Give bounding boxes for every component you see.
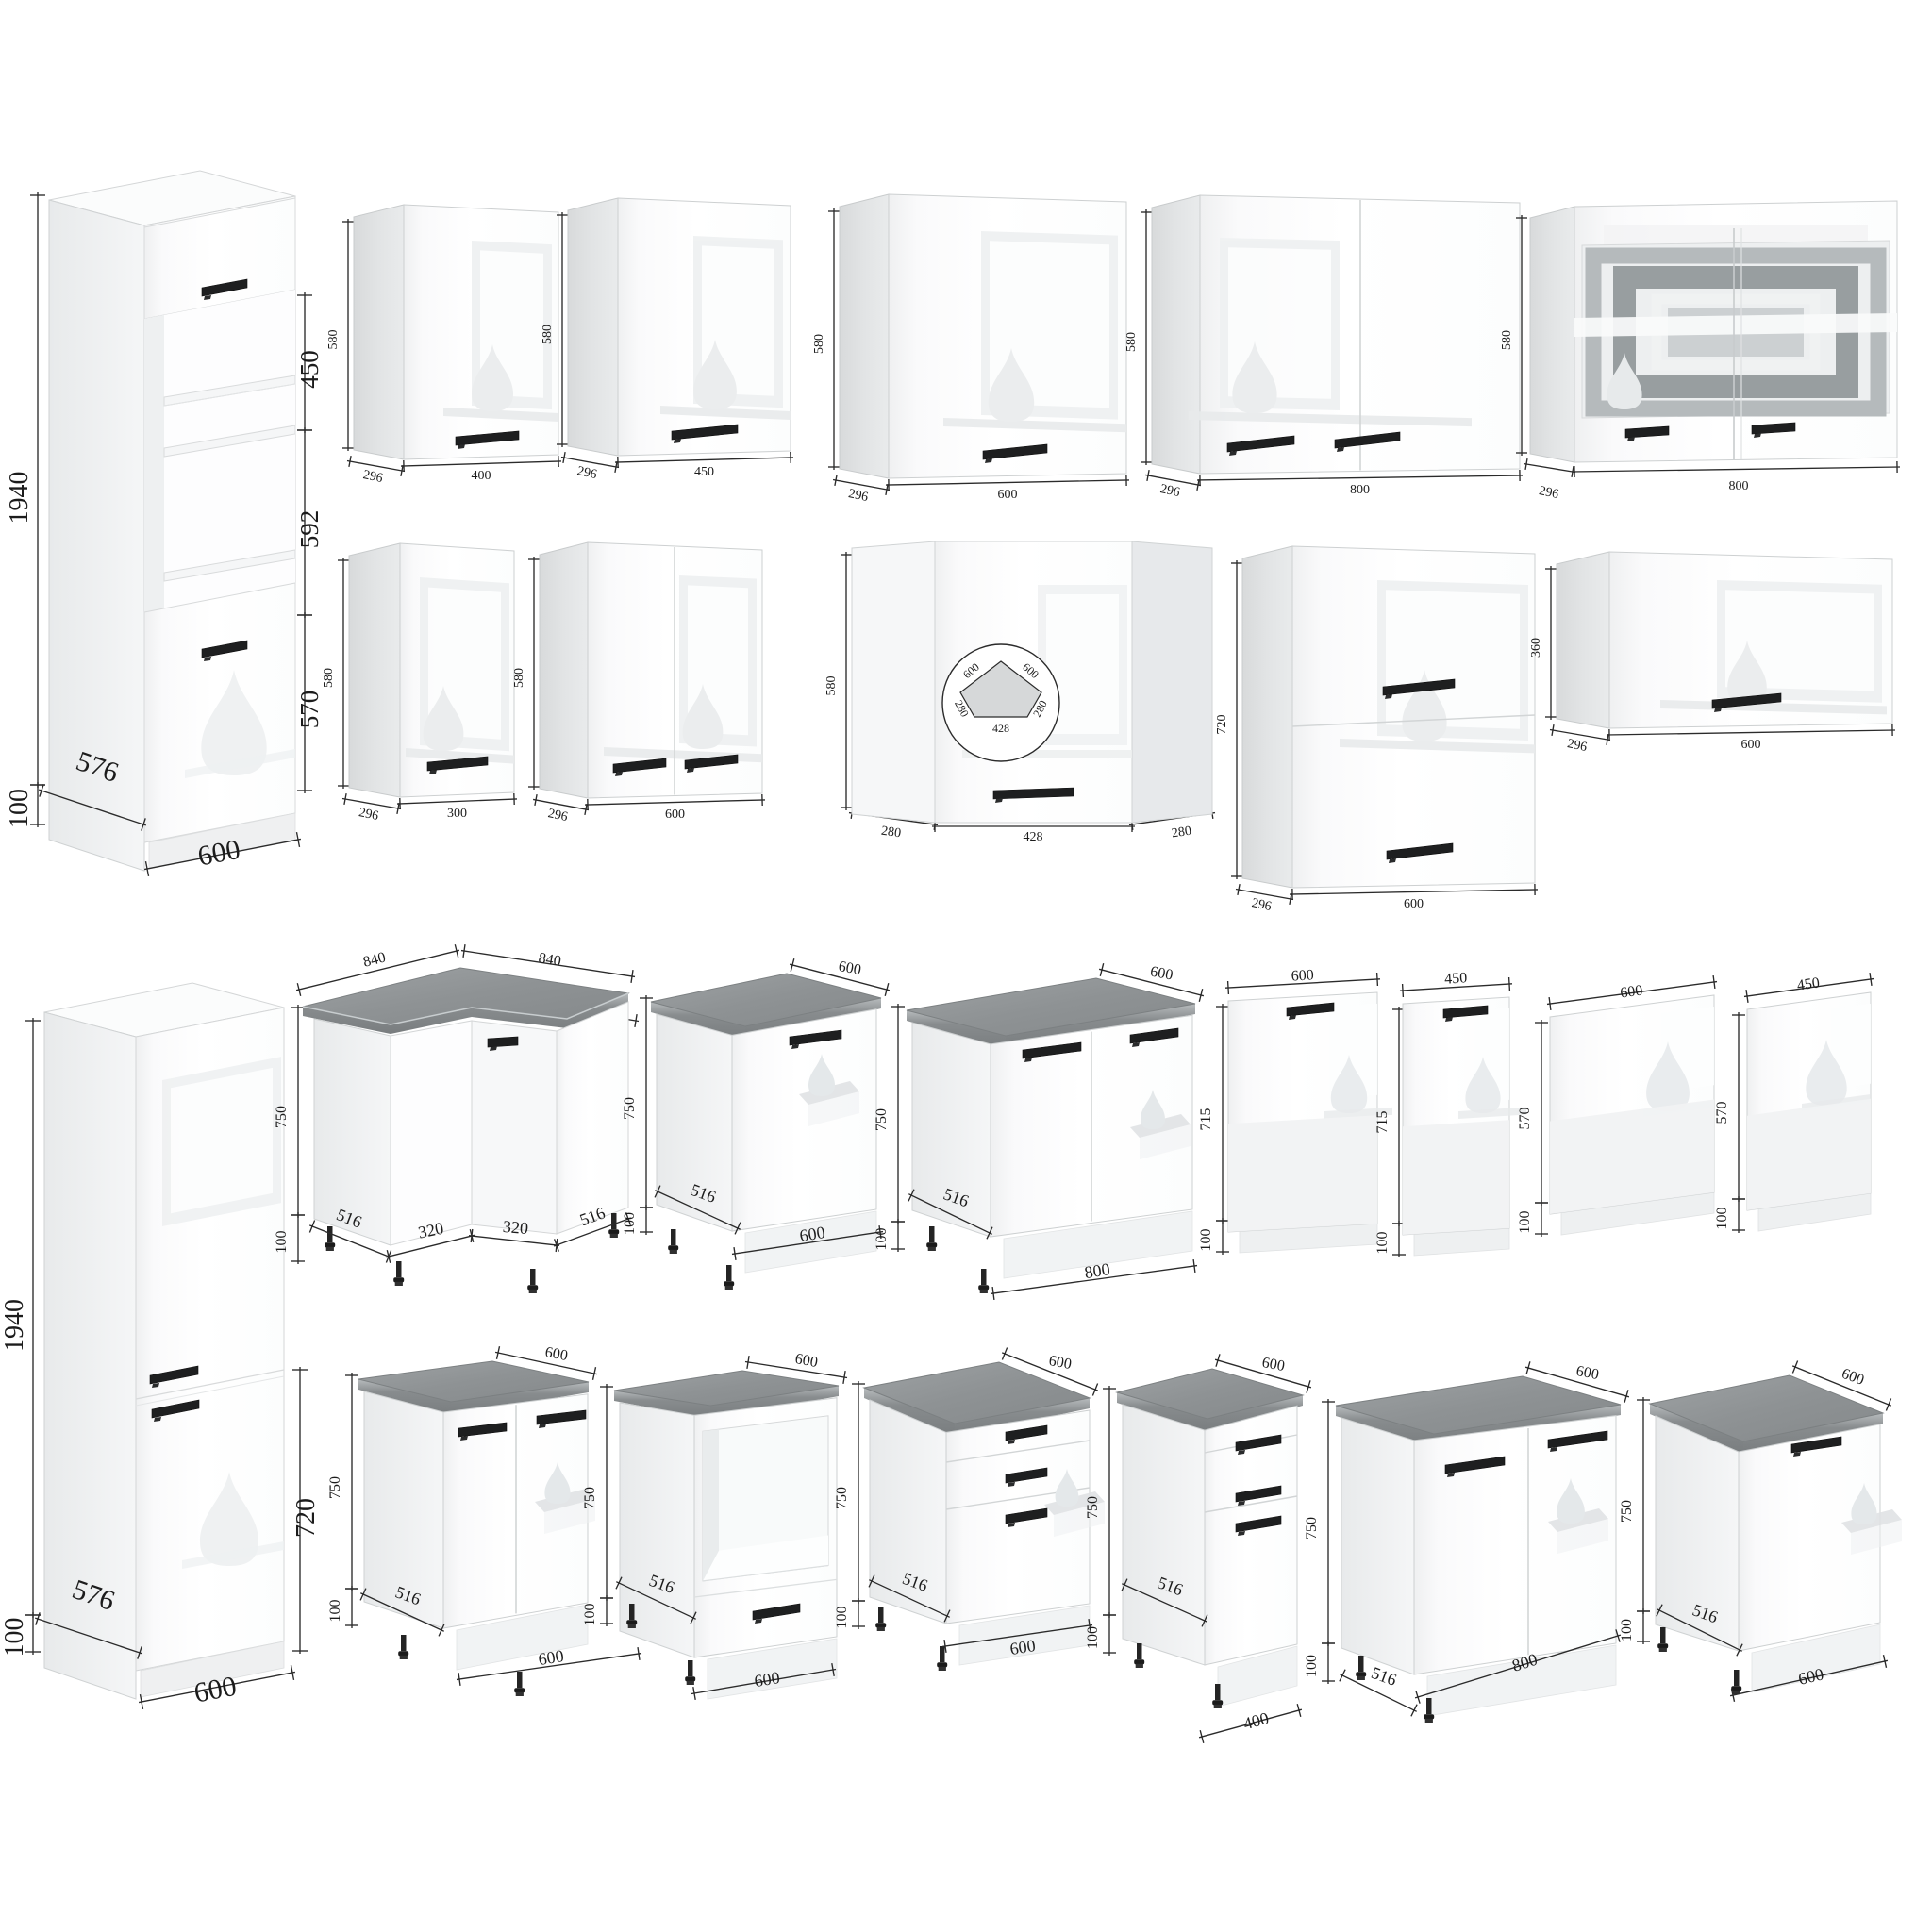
svg-text:570: 570 <box>1714 1102 1730 1124</box>
svg-text:580: 580 <box>824 676 839 696</box>
svg-text:750: 750 <box>834 1487 850 1509</box>
svg-text:750: 750 <box>1304 1517 1320 1540</box>
svg-text:100: 100 <box>874 1228 890 1251</box>
svg-text:600: 600 <box>753 1668 781 1690</box>
svg-text:1940: 1940 <box>5 472 34 525</box>
svg-text:580: 580 <box>322 668 336 688</box>
svg-text:600: 600 <box>1404 897 1424 911</box>
svg-text:600: 600 <box>1741 738 1761 752</box>
svg-text:450: 450 <box>295 350 324 389</box>
svg-text:750: 750 <box>327 1476 343 1499</box>
svg-text:450: 450 <box>1444 970 1468 987</box>
svg-text:100: 100 <box>622 1212 638 1235</box>
svg-text:100: 100 <box>0 1618 29 1657</box>
svg-text:600: 600 <box>537 1646 565 1669</box>
svg-text:600: 600 <box>665 808 685 822</box>
svg-text:280: 280 <box>1171 824 1192 841</box>
svg-text:100: 100 <box>1714 1207 1730 1230</box>
svg-text:428: 428 <box>1024 830 1043 844</box>
svg-text:580: 580 <box>1500 330 1514 350</box>
svg-text:450: 450 <box>694 465 714 479</box>
svg-text:750: 750 <box>874 1108 890 1131</box>
svg-text:100: 100 <box>1085 1626 1101 1649</box>
svg-text:720: 720 <box>1215 715 1229 735</box>
svg-text:300: 300 <box>447 807 467 821</box>
svg-text:720: 720 <box>291 1498 321 1538</box>
svg-text:580: 580 <box>1124 332 1139 352</box>
svg-text:580: 580 <box>326 330 341 350</box>
svg-text:100: 100 <box>327 1600 343 1623</box>
svg-text:600: 600 <box>1291 967 1314 984</box>
svg-text:100: 100 <box>274 1231 290 1254</box>
svg-text:100: 100 <box>1517 1211 1533 1234</box>
svg-text:580: 580 <box>541 325 555 344</box>
svg-text:428: 428 <box>992 722 1009 735</box>
svg-text:600: 600 <box>1008 1636 1037 1658</box>
svg-text:750: 750 <box>274 1106 290 1128</box>
svg-text:592: 592 <box>295 510 324 549</box>
svg-text:800: 800 <box>1083 1259 1111 1282</box>
svg-text:100: 100 <box>834 1607 850 1629</box>
svg-text:600: 600 <box>998 488 1018 502</box>
svg-text:100: 100 <box>1198 1229 1214 1252</box>
svg-text:750: 750 <box>1619 1500 1635 1523</box>
svg-text:570: 570 <box>1517 1108 1533 1130</box>
svg-text:320: 320 <box>502 1217 529 1238</box>
svg-text:100: 100 <box>5 789 34 828</box>
svg-text:1940: 1940 <box>0 1299 29 1352</box>
svg-text:715: 715 <box>1198 1108 1214 1131</box>
svg-text:100: 100 <box>582 1604 598 1626</box>
svg-text:400: 400 <box>472 469 491 483</box>
svg-text:715: 715 <box>1374 1111 1391 1134</box>
svg-text:600: 600 <box>1619 983 1643 1002</box>
svg-text:600: 600 <box>798 1223 826 1245</box>
svg-text:100: 100 <box>1304 1655 1320 1677</box>
svg-text:580: 580 <box>512 668 526 688</box>
svg-text:800: 800 <box>1729 479 1749 493</box>
svg-text:100: 100 <box>1374 1232 1391 1255</box>
svg-text:570: 570 <box>295 691 324 729</box>
svg-text:750: 750 <box>1085 1496 1101 1519</box>
svg-text:100: 100 <box>1619 1619 1635 1641</box>
svg-text:750: 750 <box>622 1097 638 1120</box>
svg-text:280: 280 <box>880 824 902 841</box>
svg-text:800: 800 <box>1350 483 1370 497</box>
svg-text:750: 750 <box>582 1487 598 1509</box>
svg-text:360: 360 <box>1529 638 1543 658</box>
svg-text:580: 580 <box>812 334 826 354</box>
svg-text:450: 450 <box>1796 974 1821 993</box>
